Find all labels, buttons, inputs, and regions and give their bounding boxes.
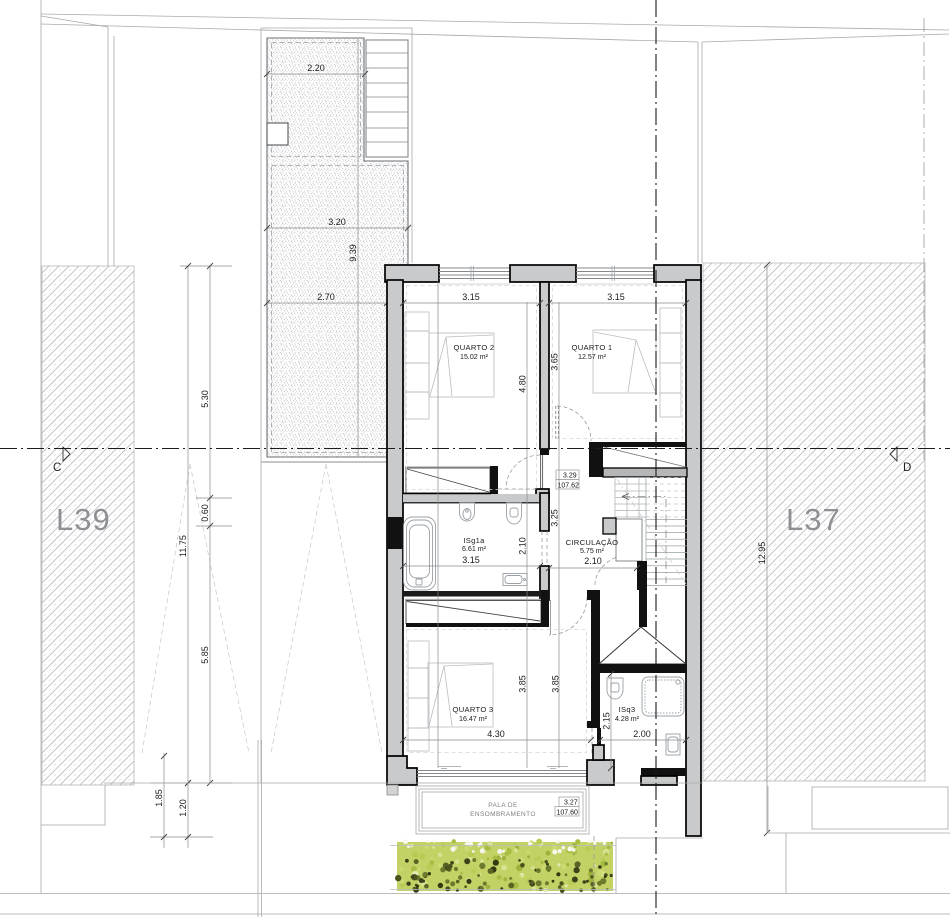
svg-text:3.65: 3.65	[550, 353, 560, 371]
svg-text:3.27: 3.27	[564, 800, 578, 807]
svg-text:2.15: 2.15	[602, 712, 612, 730]
svg-text:3.20: 3.20	[328, 217, 346, 227]
svg-text:3.29: 3.29	[563, 473, 577, 480]
svg-text:C: C	[53, 462, 61, 474]
svg-text:15.02 m²: 15.02 m²	[460, 353, 489, 361]
svg-text:16.47 m²: 16.47 m²	[459, 715, 488, 723]
svg-text:6.61 m²: 6.61 m²	[462, 545, 487, 553]
svg-text:3.15: 3.15	[607, 292, 625, 302]
svg-text:3.85: 3.85	[518, 675, 528, 693]
svg-text:L39: L39	[56, 502, 111, 537]
svg-text:107.60: 107.60	[557, 810, 579, 817]
svg-text:ISg1a: ISg1a	[463, 536, 485, 545]
svg-text:5.30: 5.30	[200, 390, 210, 408]
svg-text:ISq3: ISq3	[619, 705, 636, 714]
svg-text:QUARTO 1: QUARTO 1	[572, 343, 613, 352]
svg-text:QUARTO 2: QUARTO 2	[454, 343, 495, 352]
svg-text:2.20: 2.20	[307, 63, 325, 73]
svg-text:5.75 m²: 5.75 m²	[580, 547, 605, 555]
svg-text:2.70: 2.70	[317, 292, 335, 302]
svg-text:PALA DE: PALA DE	[488, 802, 518, 809]
svg-text:0.60: 0.60	[200, 504, 210, 522]
svg-text:2.00: 2.00	[633, 729, 651, 739]
svg-text:3.15: 3.15	[462, 292, 480, 302]
svg-text:3.25: 3.25	[550, 509, 560, 527]
svg-text:9.39: 9.39	[348, 244, 358, 262]
svg-text:12.57 m²: 12.57 m²	[578, 353, 607, 361]
svg-text:1.85: 1.85	[154, 789, 164, 807]
svg-text:ENSOMBRAMENTO: ENSOMBRAMENTO	[470, 811, 536, 818]
svg-text:11.75: 11.75	[178, 535, 188, 557]
svg-text:1.20: 1.20	[178, 799, 188, 817]
svg-text:107.62: 107.62	[558, 483, 580, 490]
svg-text:D: D	[903, 462, 911, 474]
svg-text:2.10: 2.10	[584, 556, 602, 566]
svg-text:3.85: 3.85	[551, 675, 561, 693]
svg-text:2.10: 2.10	[518, 537, 528, 555]
svg-text:4.30: 4.30	[487, 729, 505, 739]
svg-text:12.95: 12.95	[757, 542, 767, 565]
svg-text:5.85: 5.85	[200, 646, 210, 664]
svg-text:QUARTO 3: QUARTO 3	[453, 705, 494, 714]
svg-text:CIRCULAÇÃO: CIRCULAÇÃO	[566, 538, 619, 547]
svg-text:3.15: 3.15	[462, 555, 480, 565]
svg-text:4.80: 4.80	[518, 375, 528, 393]
svg-text:4.28 m²: 4.28 m²	[615, 715, 640, 723]
svg-text:L37: L37	[786, 502, 841, 537]
